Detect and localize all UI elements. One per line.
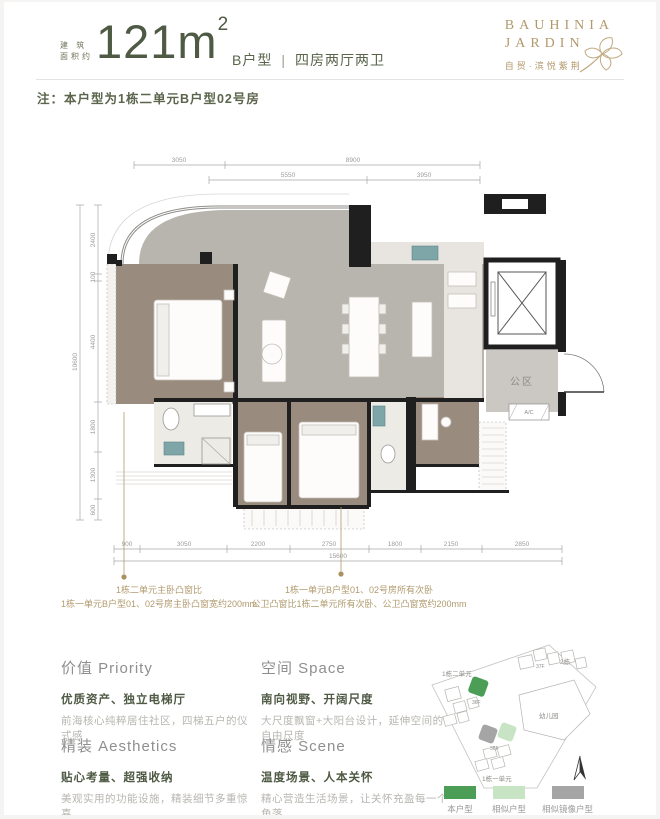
roof-vent [502, 199, 528, 209]
legend-swatch-similar-unit [493, 786, 525, 799]
section-body: 美观实用的功能设施，精装细节多重惊喜 [61, 791, 251, 815]
section-subtitle: 贴心考量、超强收纳 [61, 769, 251, 785]
separator: | [281, 52, 286, 68]
svg-text:600: 600 [90, 504, 97, 515]
bath2-sink [373, 406, 385, 426]
public-area-label: 公区 [510, 376, 534, 388]
svg-text:900: 900 [122, 541, 133, 548]
desk-chair [441, 417, 451, 427]
area-label-line1: 建 筑 [60, 40, 94, 51]
building2-label: 2栋 [560, 657, 571, 666]
svg-text:100: 100 [90, 271, 97, 282]
unit-type-line: B户型|四房两厅两卫 [232, 50, 385, 70]
kitchen-sink [412, 246, 438, 260]
ac-unit: A/C [509, 404, 549, 420]
masterbath-sink [164, 442, 184, 455]
bottom-bay-window [244, 507, 364, 529]
section-subtitle: 优质资产、独立电梯厅 [61, 691, 251, 707]
side-balcony [479, 422, 506, 492]
svg-text:3050: 3050 [177, 541, 192, 548]
area-label: 建 筑 面积约 [60, 40, 94, 62]
svg-text:15600: 15600 [329, 553, 347, 560]
unit-type: B户型 [232, 52, 272, 68]
stove [448, 272, 476, 286]
legend-item: 相似镜像户型 [542, 786, 593, 815]
master-bay-window [107, 264, 116, 404]
svg-text:2400: 2400 [90, 232, 97, 247]
section-title: 精装 Aesthetics [61, 735, 251, 756]
annotation-2-line2: 公卫凸窗比1栋二单元所有次卧、公卫凸窗宽约200mm [229, 597, 489, 611]
mirror-unit-building [478, 724, 499, 745]
note-line: 注：本户型为1栋二单元B户型02号房 [37, 88, 260, 107]
desk [422, 404, 438, 440]
site-legend: 本户型 相似户型 相似镜像户型 [444, 786, 593, 815]
unit2-label: 1栋二单元 [442, 669, 472, 678]
floorplan-page: 建 筑 面积约 121m2 B户型|四房两厅两卫 BAUHINIA JARDIN… [4, 2, 656, 815]
section-aesthetics: 精装 Aesthetics 贴心考量、超强收纳 美观实用的功能设施，精装细节多重… [61, 735, 251, 815]
kindergarten-building [519, 680, 590, 740]
section-body: 精心营造生活场景，让关怀充盈每一个角落 [261, 791, 451, 815]
annotation-2-line1: 1栋一单元B户型01、02号房所有次卧 [229, 583, 489, 597]
this-unit-building [467, 676, 489, 698]
similar-unit-building [497, 722, 518, 743]
area-number: 121m [96, 15, 218, 68]
legend-label: 相似户型 [492, 803, 526, 815]
svg-text:A/C: A/C [524, 410, 533, 416]
svg-text:1800: 1800 [90, 419, 97, 434]
layout-desc: 四房两厅两卫 [295, 52, 385, 68]
site-map: 1栋二单元 2栋 37F 36F 36F 幼儿园 1栋一单元 [424, 640, 656, 790]
area-value: 121m2 [96, 14, 229, 69]
nightstand [224, 290, 234, 300]
svg-text:3950: 3950 [417, 172, 432, 179]
legend-label: 本户型 [444, 803, 476, 815]
legend-swatch-this-unit [444, 786, 476, 799]
section-subtitle: 南向视野、开阔尺度 [261, 691, 451, 707]
shelf [194, 404, 230, 416]
dim-lines-left [76, 205, 102, 520]
north-arrow-icon [574, 756, 586, 780]
annotation-dot-2 [338, 571, 343, 576]
svg-text:1300: 1300 [90, 467, 97, 482]
area-label-line2: 面积约 [60, 51, 94, 62]
section-title: 情感 Scene [261, 735, 451, 756]
bauhinia-flower-icon [578, 32, 626, 74]
elevator-shaft [486, 260, 558, 347]
section-space: 空间 Space 南向视野、开阔尺度 大尺度飘窗+大阳台设计，延伸空间的自由尺度 [261, 657, 451, 743]
svg-text:2200: 2200 [251, 541, 266, 548]
section-subtitle: 温度场景、人本关怀 [261, 769, 451, 785]
svg-text:10600: 10600 [72, 353, 79, 371]
legend-label: 相似镜像户型 [542, 803, 593, 815]
area-sup: 2 [218, 14, 230, 35]
toilet [163, 408, 179, 430]
unit1-label: 1栋一单元 [482, 774, 512, 783]
entry-door [564, 354, 604, 392]
header-divider [36, 79, 624, 80]
kitchen-island [412, 302, 432, 357]
floor-label: 36F [490, 746, 499, 752]
counter-unit [448, 294, 476, 308]
section-title: 空间 Space [261, 657, 451, 678]
floor-label: 36F [472, 700, 481, 706]
toilet2 [381, 445, 395, 463]
floorplan-drawing: 3050 8900 5550 3950 10600 2400 100 4400 … [4, 142, 656, 587]
dim-labels-left: 10600 2400 100 4400 1800 1300 600 [72, 232, 97, 515]
annotation-2: 1栋一单元B户型01、02号房所有次卧 公卫凸窗比1栋二单元所有次卧、公卫凸窗宽… [229, 583, 489, 611]
svg-text:2750: 2750 [322, 541, 337, 548]
kindergarten-label: 幼儿园 [539, 711, 559, 720]
floor-label: 37F [536, 664, 545, 670]
site-buildings [443, 648, 590, 772]
svg-text:3050: 3050 [172, 157, 187, 164]
section-title: 价值 Priority [61, 657, 251, 678]
legend-item: 相似户型 [492, 786, 526, 815]
dim-labels-bottom: 900 3050 2200 2750 1800 2150 2850 15600 [122, 541, 530, 560]
svg-text:5550: 5550 [281, 172, 296, 179]
section-scene: 情感 Scene 温度场景、人本关怀 精心营造生活场景，让关怀充盈每一个角落 [261, 735, 451, 815]
svg-text:2150: 2150 [444, 541, 459, 548]
nightstand [224, 382, 234, 392]
section-priority: 价值 Priority 优质资产、独立电梯厅 前海核心纯粹居住社区，四梯五户的仪… [61, 657, 251, 743]
svg-text:1800: 1800 [388, 541, 403, 548]
dining-table [349, 297, 379, 377]
svg-text:4400: 4400 [90, 334, 97, 349]
legend-item: 本户型 [444, 786, 476, 815]
svg-text:2850: 2850 [515, 541, 530, 548]
legend-swatch-mirror-unit [552, 786, 584, 799]
svg-text:8900: 8900 [346, 157, 361, 164]
annotation-dot-1 [121, 574, 126, 579]
dim-labels-top: 3050 8900 5550 3950 [172, 157, 432, 179]
coffee-table [262, 344, 282, 364]
